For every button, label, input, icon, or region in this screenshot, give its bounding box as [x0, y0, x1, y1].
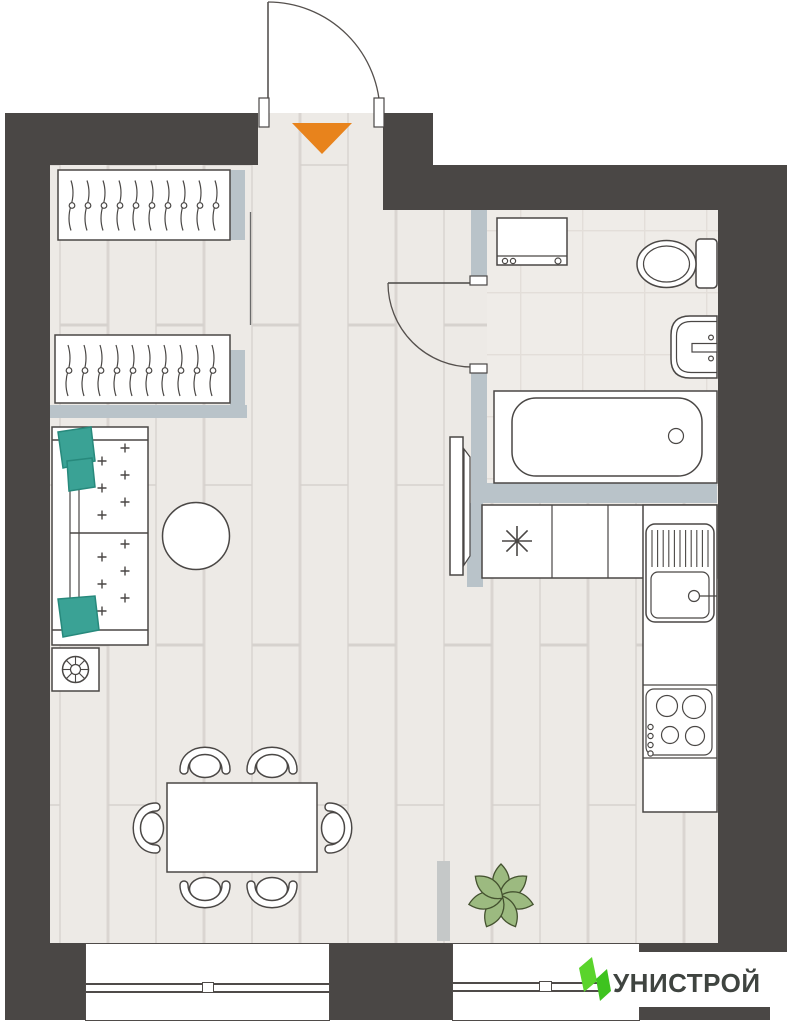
sink-faucet — [689, 591, 700, 602]
sofa-stitch-marks — [98, 444, 130, 616]
wash-basin — [671, 316, 717, 378]
wardrobe-middle — [55, 335, 230, 403]
window-right-mullion — [539, 981, 552, 992]
dining-chair — [251, 878, 293, 904]
bathtub-drain — [669, 429, 684, 444]
refrigerator-icon — [502, 526, 532, 556]
dining-table — [167, 783, 317, 872]
dining-chair — [251, 751, 293, 777]
sink-drainboard — [652, 530, 708, 567]
knob — [648, 742, 653, 747]
window-left — [85, 943, 330, 1021]
burner — [657, 696, 678, 717]
kitchen-counter — [482, 505, 717, 812]
wardrobe2-side-wall — [230, 350, 245, 407]
burner — [662, 727, 679, 744]
entry-door — [259, 2, 384, 127]
dining-chair — [137, 807, 163, 849]
burner — [683, 696, 706, 719]
knob — [648, 724, 653, 729]
cooktop — [646, 689, 712, 756]
wall-left — [5, 113, 50, 1020]
wall-entry-block — [383, 113, 433, 210]
bathtub — [494, 391, 717, 483]
dining-chair — [184, 751, 226, 777]
plant-icon — [467, 864, 535, 930]
window-pier-stub — [437, 861, 450, 941]
dining-set — [137, 751, 348, 904]
logo-parallelogram-light — [579, 957, 597, 992]
logo-text: УНИСТРОЙ — [613, 968, 761, 999]
sofa-pillow-1 — [58, 427, 95, 468]
floorplan-stage: УНИСТРОЙ — [0, 0, 787, 1024]
sofa — [52, 427, 148, 645]
logo-parallelogram-dark — [596, 969, 611, 1001]
logo-icon — [577, 955, 613, 1001]
wardrobe1-side-wall — [230, 170, 245, 240]
sofa-pillow-2 — [67, 458, 95, 491]
washing-machine — [497, 218, 567, 265]
window-left-mullion — [202, 982, 214, 993]
toilet — [637, 239, 717, 288]
dining-chair — [322, 807, 348, 849]
hanger-icons — [69, 181, 219, 231]
basin-faucet — [692, 344, 717, 353]
knob — [648, 733, 653, 738]
fan-decor-icon — [63, 657, 89, 683]
bath-kitchen-wall — [471, 483, 717, 503]
kitchen-wall-stub — [467, 503, 483, 587]
logo-box: УНИСТРОЙ — [600, 952, 787, 1007]
wall-right — [718, 210, 787, 952]
entry-door-jamb-left — [259, 98, 269, 127]
dining-chair — [184, 878, 226, 904]
kitchen-sink — [646, 524, 717, 622]
entrance-arrow-icon — [292, 123, 352, 154]
wardrobe-bottom-wall — [50, 405, 247, 418]
wall-top-left — [5, 113, 258, 165]
side-table — [52, 648, 99, 691]
sink-basin — [651, 572, 709, 618]
coffee-table — [163, 503, 230, 570]
bathroom-tile-floor — [487, 210, 718, 483]
knob — [648, 751, 653, 756]
burner — [686, 727, 705, 746]
sofa-pillow-3 — [58, 596, 99, 637]
wall-top-right — [433, 165, 787, 210]
hanger-icons — [66, 345, 216, 396]
living-floor-planks — [50, 165, 718, 943]
bathroom-door — [388, 276, 487, 373]
entrance-floor-planks — [258, 113, 383, 165]
wardrobe-top — [58, 170, 230, 240]
bathroom-wall-upper — [471, 210, 487, 278]
